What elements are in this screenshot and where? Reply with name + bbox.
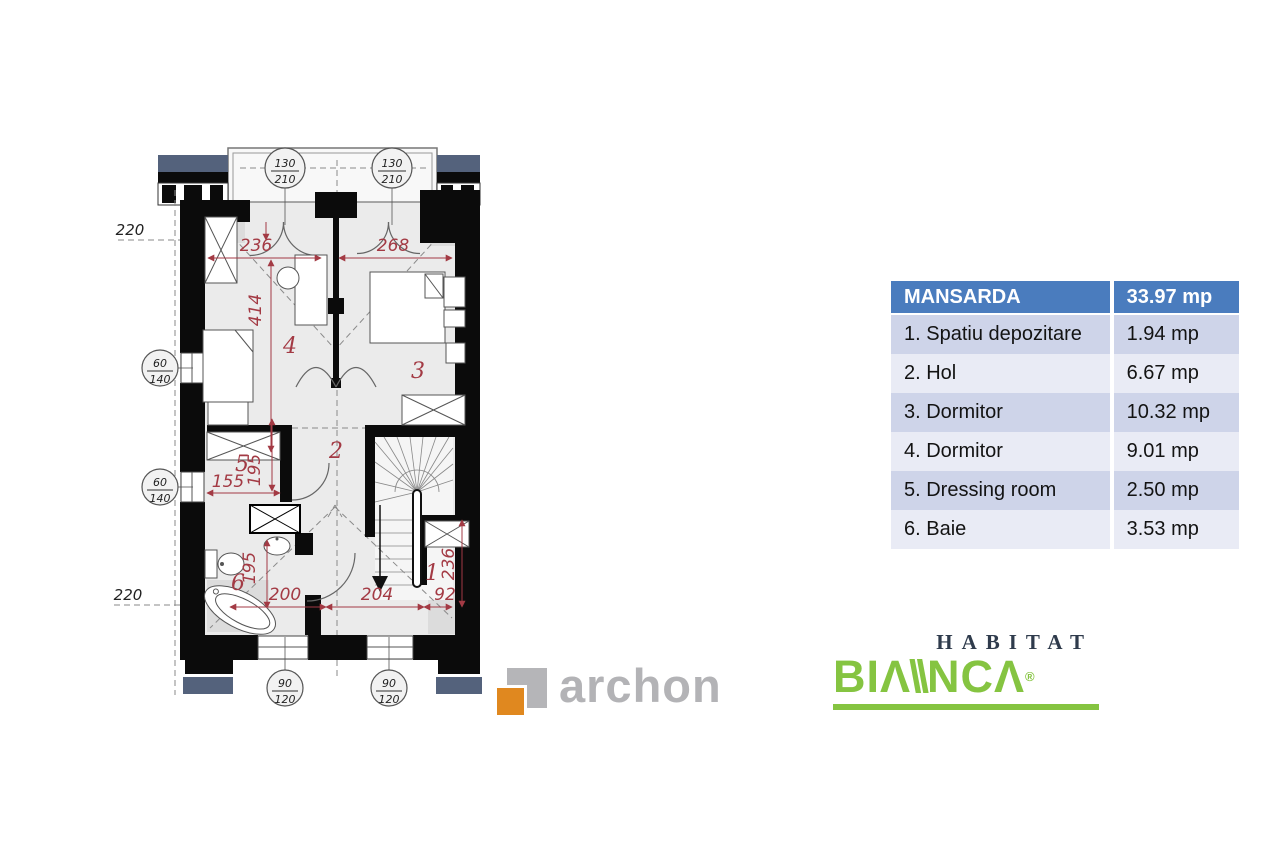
dim-268-top: 268 — [377, 236, 410, 256]
dim-414: 414 — [246, 294, 266, 326]
habitat-bianca-logo: HABITAT BIΛ\\NCΛ® — [833, 630, 1099, 718]
chair-room4 — [277, 267, 299, 289]
desk-room4 — [295, 255, 327, 325]
room-label-6: 6 — [231, 571, 245, 596]
window-tag-130-210-a: 130 210 — [265, 148, 305, 188]
svg-text:130: 130 — [275, 157, 296, 170]
area-table: MANSARDA 33.97 mp 1. Spatiu depozitare 1… — [891, 281, 1239, 549]
dim-200: 200 — [269, 585, 301, 605]
archon-logo: archon — [497, 666, 737, 718]
nightstand — [444, 310, 465, 327]
dim-92: 92 — [434, 585, 456, 605]
room-area: 6.67 mp — [1114, 354, 1239, 393]
table-row: 2. Hol 6.67 mp — [891, 354, 1239, 393]
svg-text:60: 60 — [153, 476, 167, 489]
table-header-area: 33.97 mp — [1114, 281, 1239, 313]
table-header-level: MANSARDA — [891, 281, 1110, 313]
svg-text:210: 210 — [382, 173, 403, 186]
dresser-room4 — [208, 402, 248, 425]
room-name: 4. Dormitor — [891, 432, 1110, 471]
room-area: 10.32 mp — [1114, 393, 1239, 432]
floor-plan: 236 268 414 155 195 195 200 204 92 236 2… — [100, 140, 500, 710]
table-row: 1. Spatiu depozitare 1.94 mp — [891, 315, 1239, 354]
room-label-1: 1 — [425, 561, 439, 586]
registered-mark: ® — [1025, 669, 1036, 684]
toilet-tank — [205, 550, 217, 578]
room-name: 3. Dormitor — [891, 393, 1110, 432]
dim-220-top: 220 — [116, 221, 145, 239]
svg-text:140: 140 — [150, 373, 171, 386]
svg-text:90: 90 — [278, 677, 292, 690]
window-tag-60-140-a: 60 140 — [142, 350, 178, 386]
room-area: 1.94 mp — [1114, 315, 1239, 354]
room-label-3: 3 — [411, 359, 425, 384]
svg-text:60: 60 — [153, 357, 167, 370]
dim-236-top: 236 — [240, 236, 273, 256]
table-row: 6. Baie 3.53 mp — [891, 510, 1239, 549]
room-label-2: 2 — [328, 439, 343, 464]
svg-text:120: 120 — [379, 693, 400, 706]
window-tag-90-120-a: 90 120 — [267, 670, 303, 706]
room-area: 2.50 mp — [1114, 471, 1239, 510]
room-name: 2. Hol — [891, 354, 1110, 393]
room-area: 9.01 mp — [1114, 432, 1239, 471]
svg-text:130: 130 — [382, 157, 403, 170]
archon-logo-icon — [497, 668, 547, 716]
table-row: 4. Dormitor 9.01 mp — [891, 432, 1239, 471]
screenshot: 236 268 414 155 195 195 200 204 92 236 2… — [0, 0, 1280, 853]
table-header-row: MANSARDA 33.97 mp — [891, 281, 1239, 313]
svg-text:90: 90 — [382, 677, 396, 690]
dim-220-bottom: 220 — [114, 586, 143, 604]
svg-text:120: 120 — [275, 693, 296, 706]
room-name: 5. Dressing room — [891, 471, 1110, 510]
window-tag-130-210-b: 130 210 — [372, 148, 412, 188]
bianca-underline — [833, 704, 1099, 710]
window-tag-60-140-b: 60 140 — [142, 469, 178, 505]
nightstand — [446, 343, 465, 363]
archon-logo-text: archon — [559, 658, 722, 713]
svg-text:140: 140 — [150, 492, 171, 505]
dim-236-storage: 236 — [439, 548, 459, 581]
room-name: 1. Spatiu depozitare — [891, 315, 1110, 354]
room-label-5: 5 — [235, 452, 249, 477]
table-row: 5. Dressing room 2.50 mp — [891, 471, 1239, 510]
room-area: 3.53 mp — [1114, 510, 1239, 549]
window-tag-90-120-b: 90 120 — [371, 670, 407, 706]
room-name: 6. Baie — [891, 510, 1110, 549]
svg-text:210: 210 — [275, 173, 296, 186]
table-row: 3. Dormitor 10.32 mp — [891, 393, 1239, 432]
nightstand — [444, 277, 465, 307]
bianca-wordmark: BIΛ\\NCΛ® — [833, 655, 1099, 699]
room-label-4: 4 — [282, 334, 297, 359]
dim-204: 204 — [361, 585, 393, 605]
bed-room4 — [203, 330, 253, 402]
